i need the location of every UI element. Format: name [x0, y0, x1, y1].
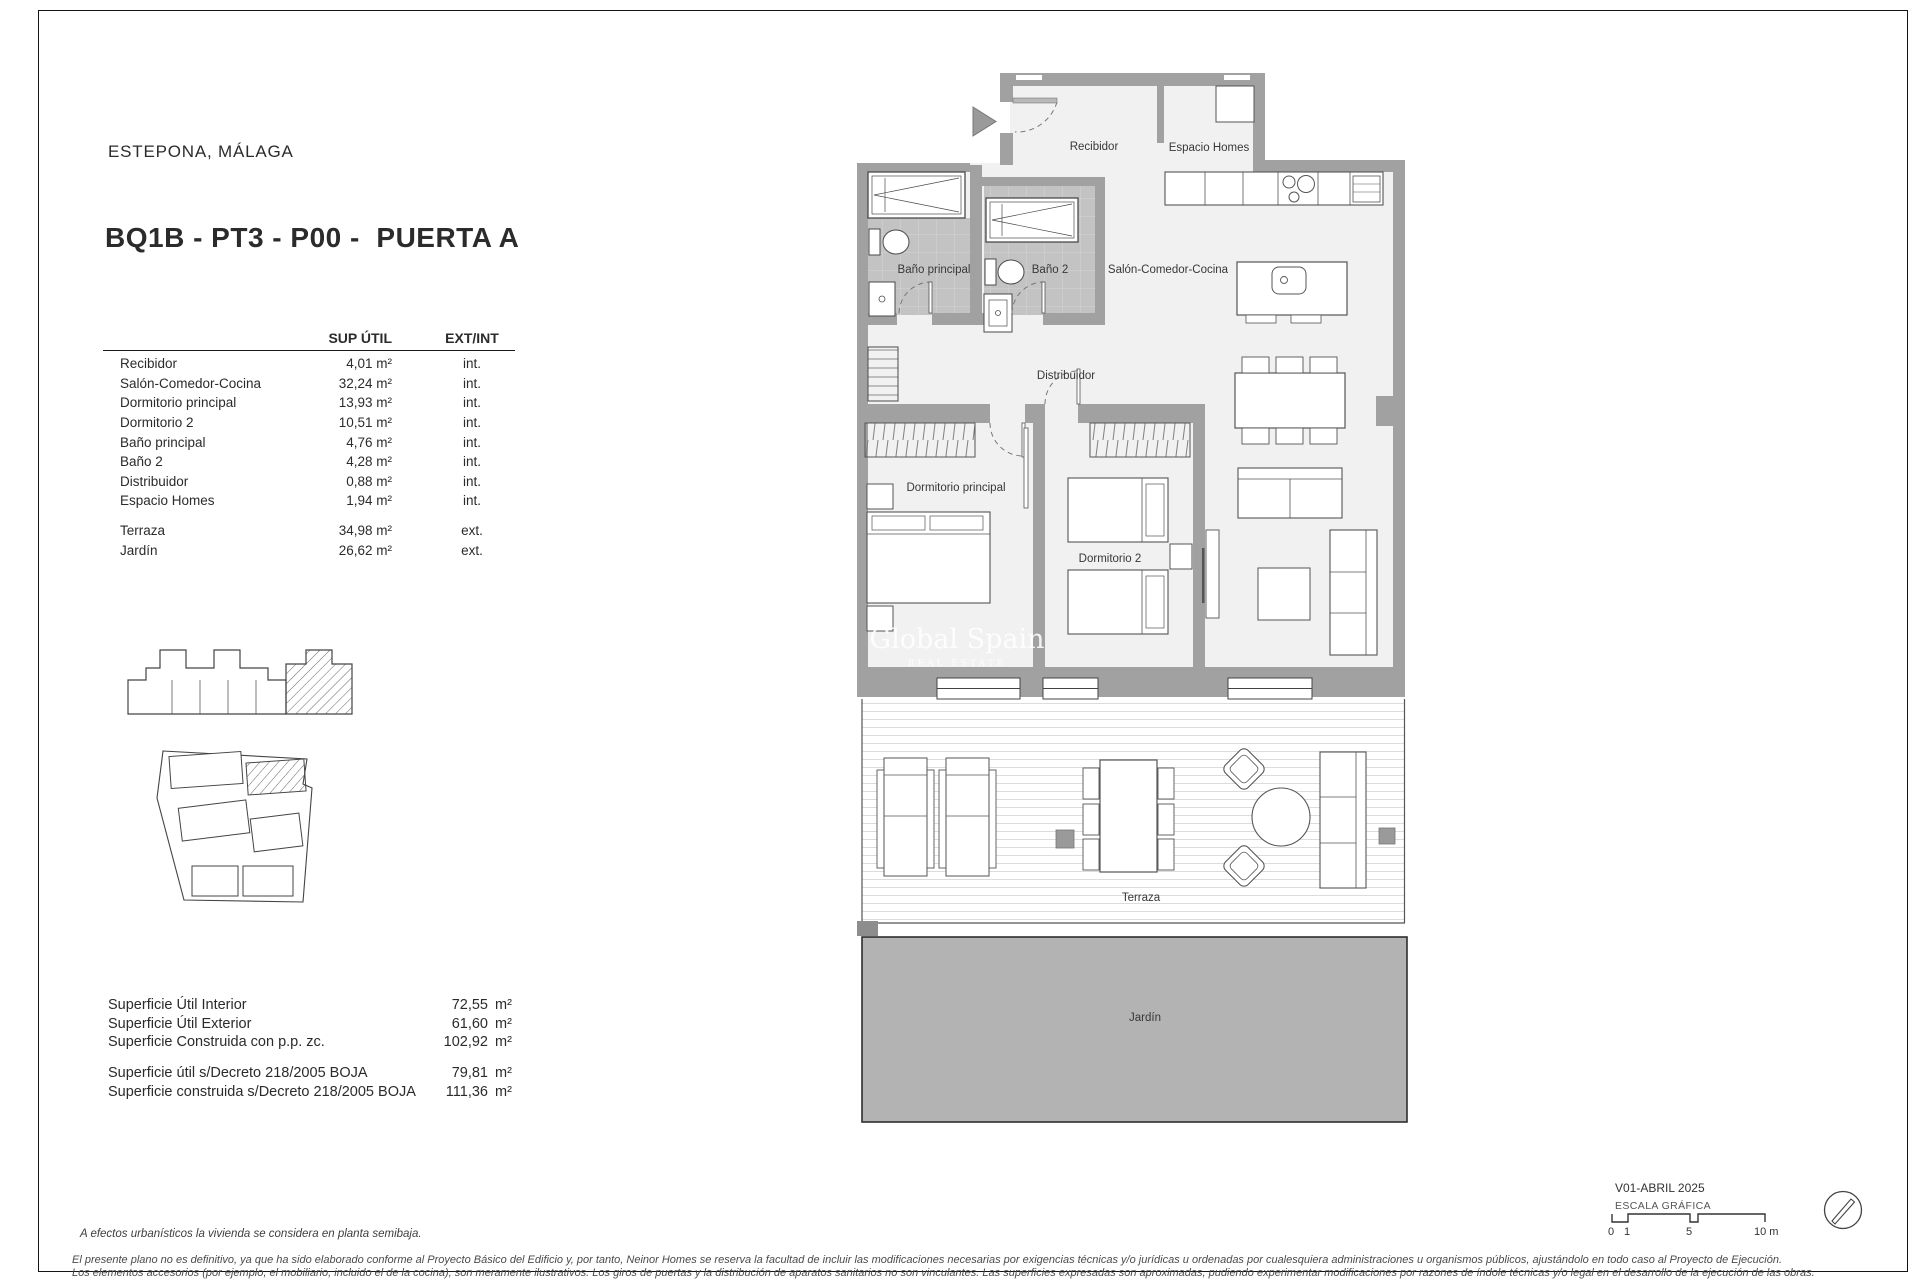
tv-icon [1202, 548, 1205, 603]
site-plan-diagram [140, 743, 322, 911]
espacio-homes-closet [1216, 86, 1254, 122]
sun-lounger [877, 758, 934, 876]
svg-text:0: 0 [1608, 1226, 1614, 1238]
graphic-scale-bar: 0 1 5 10 m [1602, 1210, 1802, 1240]
surface-summary: Superficie Útil Interior72,55m² Superfic… [108, 996, 528, 1101]
toilet-tank [985, 259, 996, 285]
toilet-bowl [883, 230, 909, 254]
garden-area [862, 937, 1407, 1122]
areas-table: SUP ÚTIL EXT/INT Recibidor4,01 m²int. Sa… [103, 330, 515, 560]
nightstand [867, 484, 893, 509]
building-elevation-diagram [122, 620, 367, 720]
summary-row: Superficie construida s/Decreto 218/2005… [108, 1083, 528, 1101]
pouf [1056, 830, 1074, 848]
svg-text:REAL ESTATE: REAL ESTATE [908, 659, 1007, 669]
summary-row: Superficie Útil Exterior61,60m² [108, 1014, 528, 1032]
summary-row: Superficie útil s/Decreto 218/2005 BOJA7… [108, 1064, 528, 1082]
table-row: Salón-Comedor-Cocina32,24 m²int. [103, 374, 515, 394]
wardrobe [1090, 423, 1190, 457]
version-label: V01-ABRIL 2025 [1615, 1181, 1705, 1195]
col-header-ext-int: EXT/INT [429, 330, 515, 346]
table-row: Espacio Homes1,94 m²int. [103, 491, 515, 511]
dining-table [1235, 373, 1345, 428]
pillow [872, 516, 925, 530]
table-row: Baño 24,28 m²int. [103, 452, 515, 472]
svg-text:1: 1 [1624, 1226, 1630, 1238]
sink-vanity [869, 282, 895, 316]
kitchen-island [1237, 262, 1347, 323]
pillow [1146, 576, 1164, 628]
shower-tray [986, 198, 1078, 242]
areas-table-rows: Recibidor4,01 m²int. Salón-Comedor-Cocin… [103, 351, 515, 560]
svg-text:Global Spain: Global Spain [870, 624, 1045, 655]
dormitorio-principal-furniture [865, 423, 990, 631]
location-label: ESTEPONA, MÁLAGA [108, 142, 294, 162]
label-distribuidor: Distribuidor [1037, 370, 1095, 382]
pillow [1146, 484, 1164, 536]
label-dormitorio-principal: Dormitorio principal [906, 482, 1005, 494]
floor-plan: Global Spain REAL ESTATE Recibidor Espac… [850, 55, 1415, 1130]
dining-set [1235, 357, 1345, 444]
unit-location-hatched [246, 759, 306, 795]
svg-text:5: 5 [1686, 1226, 1692, 1238]
svg-text:10 m: 10 m [1754, 1226, 1778, 1238]
pouf [1379, 828, 1395, 844]
shower-tray [868, 172, 965, 218]
table-row: Jardín26,62 m²ext. [103, 540, 515, 560]
summary-row: Superficie Útil Interior72,55m² [108, 996, 528, 1014]
kitchen-counter [1165, 172, 1383, 205]
summary-row: Superficie Construida con p.p. zc.102,92… [108, 1033, 528, 1051]
chaise-sofa [1330, 530, 1377, 655]
entry-arrow-icon [973, 107, 996, 136]
label-terraza: Terraza [1122, 892, 1161, 904]
table-row: Distribuidor0,88 m²int. [103, 472, 515, 492]
urbanistic-note: A efectos urbanísticos la vivienda se co… [80, 1228, 422, 1240]
outdoor-sofa [1320, 752, 1366, 888]
table-row: Baño principal4,76 m²int. [103, 432, 515, 452]
table-row: Dormitorio principal13,93 m²int. [103, 393, 515, 413]
outdoor-dining-table [1100, 760, 1157, 872]
areas-table-header: SUP ÚTIL EXT/INT [103, 330, 515, 351]
wardrobe [865, 423, 975, 457]
label-jardin: Jardín [1129, 1012, 1161, 1024]
disclaimer-line-1: El presente plano no es definitivo, ya q… [72, 1254, 1782, 1266]
entry-door-leaf [1013, 98, 1057, 103]
label-bano-2: Baño 2 [1032, 264, 1068, 276]
page-title: BQ1B - PT3 - P00 - PUERTA A [105, 222, 519, 254]
round-table [1252, 788, 1310, 846]
toilet-tank [869, 229, 880, 255]
highlighted-block-hatched [286, 650, 352, 714]
tv-console [1206, 530, 1219, 618]
label-espacio-homes: Espacio Homes [1169, 142, 1250, 154]
sun-lounger [939, 758, 996, 876]
north-compass-icon [1821, 1188, 1867, 1234]
label-recibidor: Recibidor [1070, 141, 1119, 153]
table-row: Recibidor4,01 m²int. [103, 354, 515, 374]
table-row: Dormitorio 210,51 m²int. [103, 413, 515, 433]
pillow [930, 516, 983, 530]
island-sink-icon [1272, 267, 1306, 294]
island-stool [1291, 315, 1321, 323]
col-header-sup-util: SUP ÚTIL [293, 330, 392, 346]
toilet-bowl [998, 260, 1024, 284]
table-row: Terraza34,98 m²ext. [103, 521, 515, 541]
coffee-table [1258, 568, 1310, 620]
label-bano-principal: Baño principal [898, 264, 971, 276]
label-salon: Salón-Comedor-Cocina [1108, 264, 1229, 276]
utility-closet [868, 347, 898, 401]
label-dormitorio-2: Dormitorio 2 [1079, 553, 1142, 565]
wall-slot [1224, 75, 1250, 80]
pocket-door-leaf [1024, 428, 1028, 508]
nightstand [1170, 544, 1192, 569]
disclaimer-line-2: Los elementos accesorios (por ejemplo, e… [72, 1267, 1815, 1279]
floorplan-sheet: { "document": { "location": "ESTEPONA, M… [0, 0, 1920, 1280]
island-stool [1246, 315, 1276, 323]
wall-slot [1016, 75, 1042, 80]
